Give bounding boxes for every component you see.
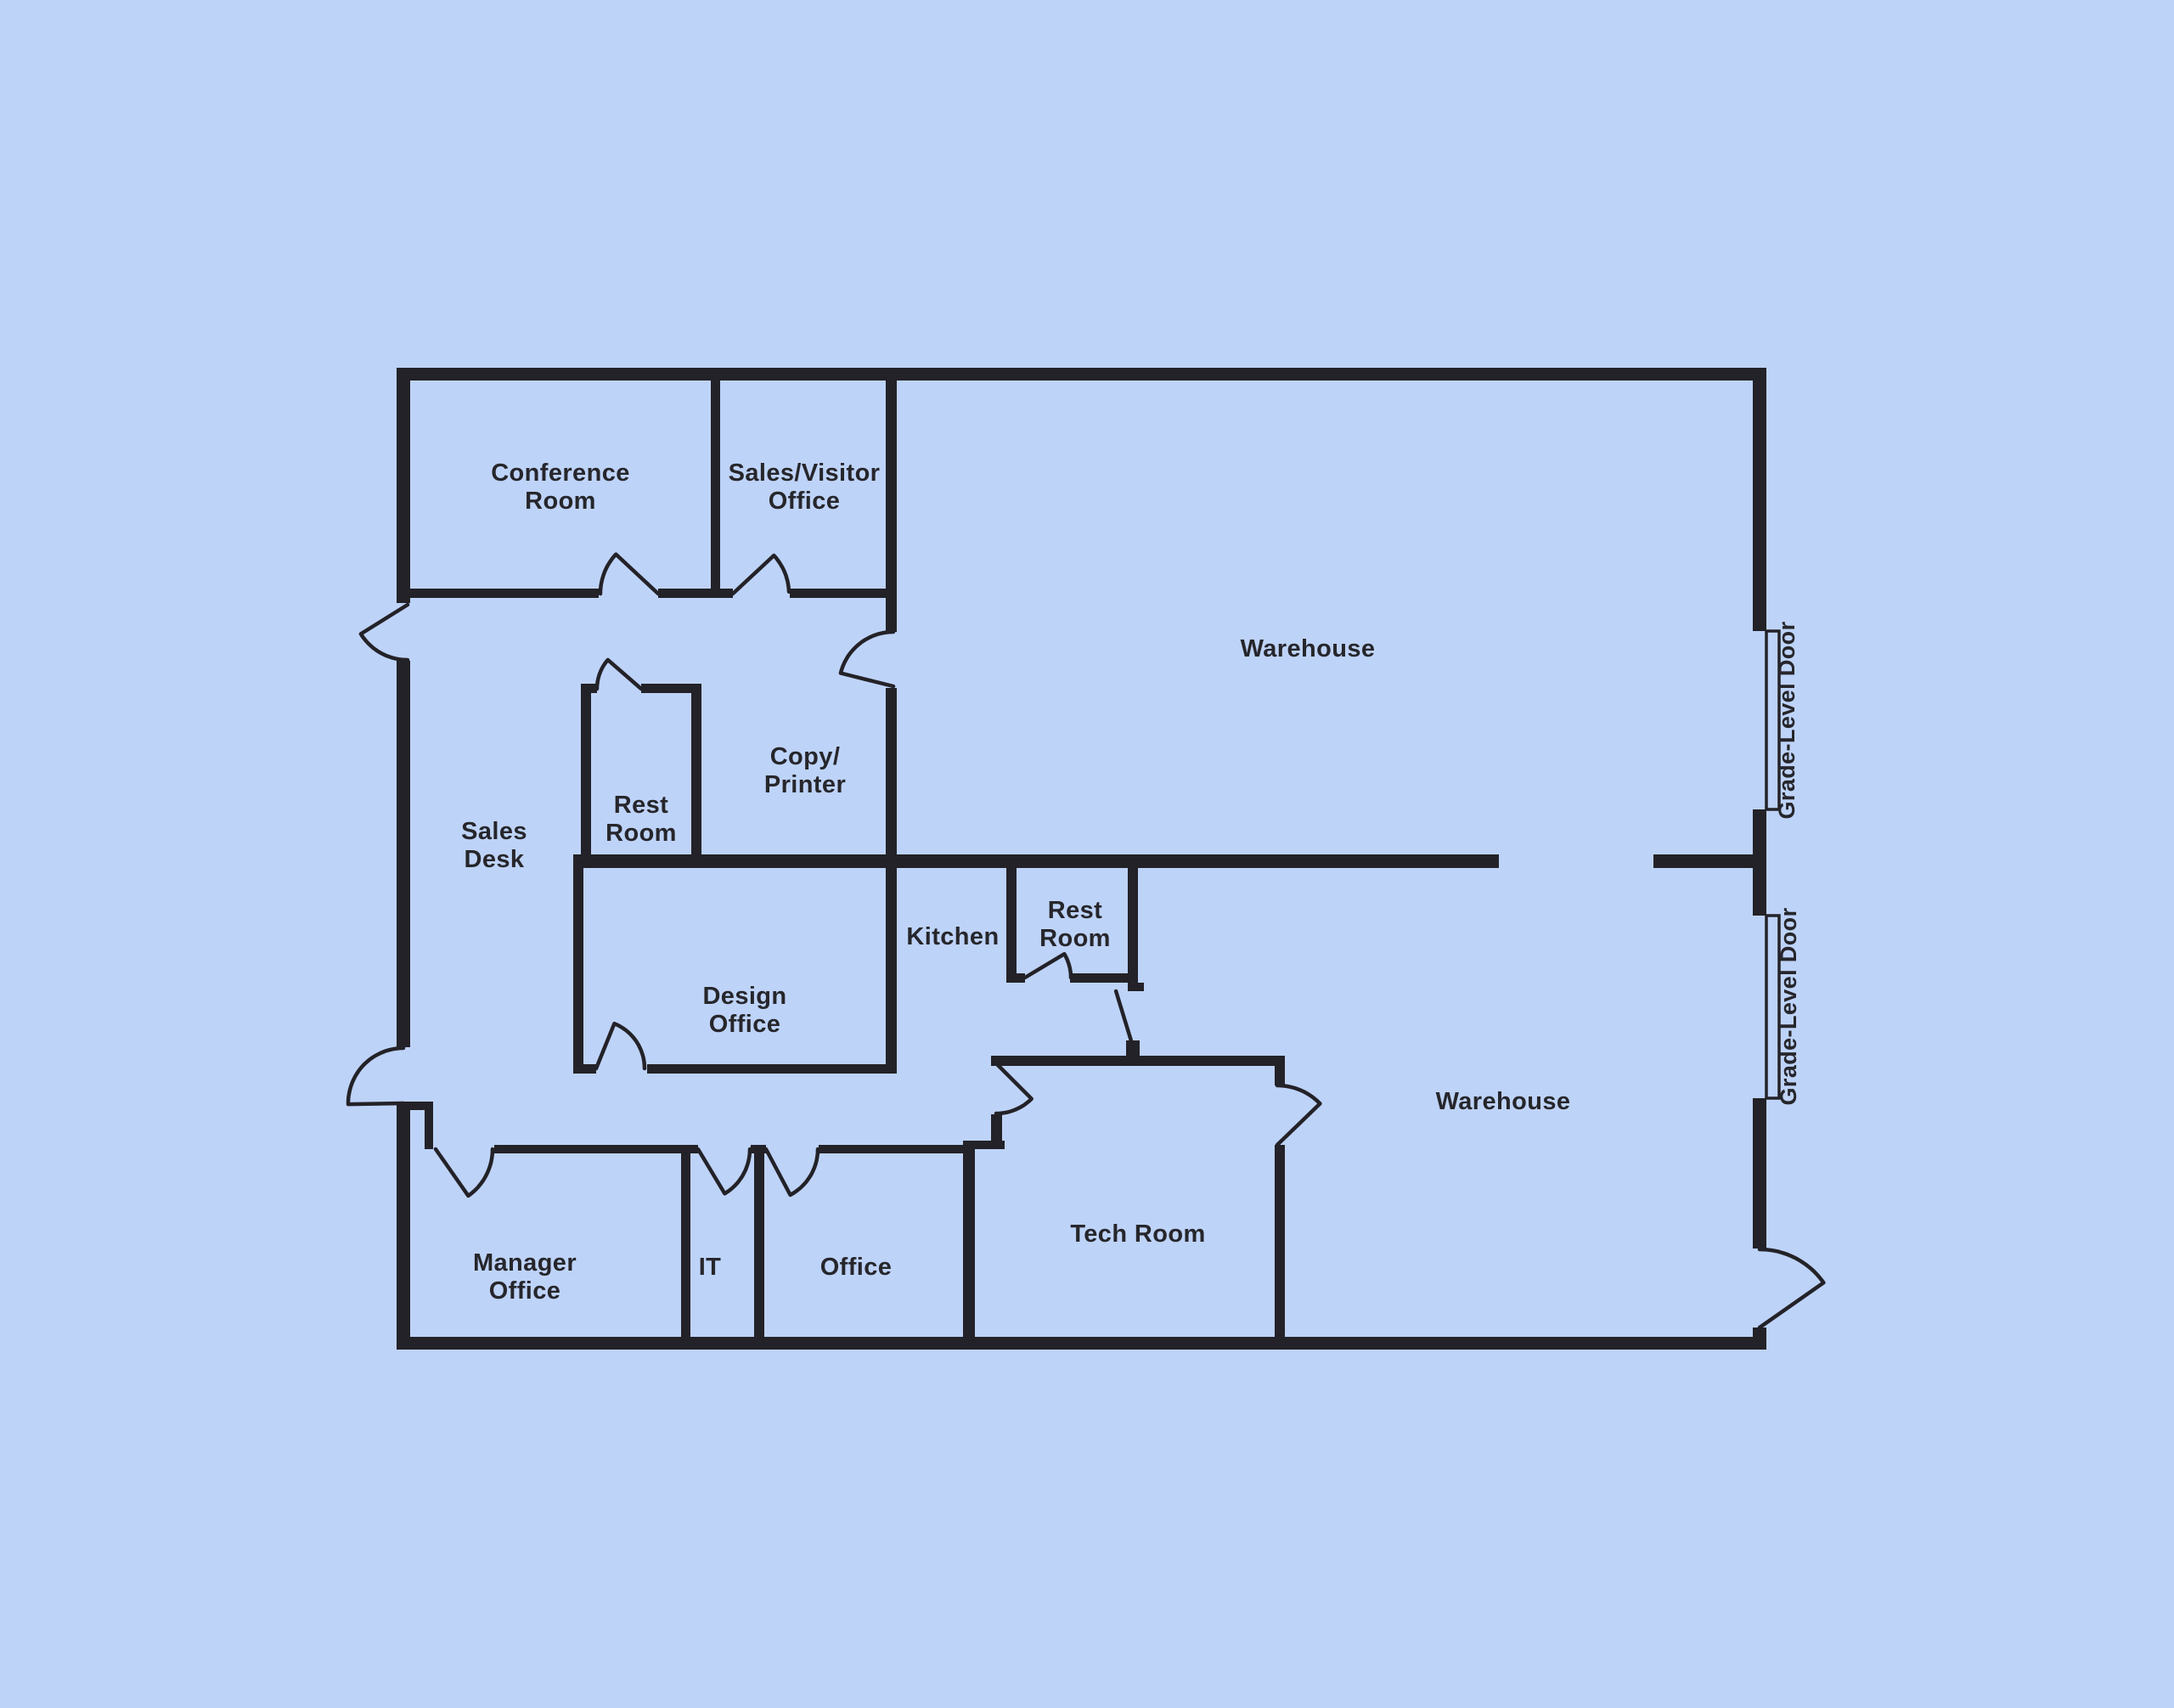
side-label-text: Grade-Level Door bbox=[1774, 621, 1799, 819]
wall bbox=[573, 1064, 596, 1074]
room-label-line: Office bbox=[769, 488, 841, 515]
side-label-grade-level-door-upper: Grade-Level Door bbox=[1774, 621, 1799, 819]
room-label-line: Copy/ bbox=[770, 743, 841, 770]
room-label-design-office: DesignOffice bbox=[702, 983, 786, 1038]
wall bbox=[711, 380, 720, 589]
room-label-line: Kitchen bbox=[906, 923, 999, 950]
room-label-rest-room-lower: RestRoom bbox=[1039, 897, 1111, 952]
room-label-office: Office bbox=[820, 1254, 893, 1281]
wall bbox=[1006, 868, 1017, 983]
wall bbox=[397, 368, 1766, 380]
room-label-line: Manager bbox=[473, 1249, 577, 1277]
room-label-line: Warehouse bbox=[1241, 635, 1376, 662]
wall bbox=[1275, 1145, 1285, 1337]
room-label-line: Sales/Visitor bbox=[729, 459, 881, 487]
room-label-line: Office bbox=[489, 1277, 561, 1305]
room-label-warehouse-lower: Warehouse bbox=[1436, 1088, 1571, 1115]
room-label-line: Sales bbox=[461, 818, 527, 845]
wall bbox=[1753, 368, 1766, 631]
room-label-line: IT bbox=[699, 1254, 722, 1281]
wall bbox=[790, 589, 897, 598]
room-label-line: Tech Room bbox=[1070, 1220, 1205, 1248]
wall bbox=[754, 1153, 764, 1337]
side-label-text: Grade-Level Door bbox=[1776, 907, 1801, 1105]
wall bbox=[397, 1337, 1766, 1350]
wall bbox=[397, 661, 410, 1047]
wall bbox=[1070, 973, 1138, 983]
wall bbox=[963, 1149, 975, 1337]
room-label-line: Printer bbox=[764, 771, 846, 798]
wall bbox=[991, 1056, 1285, 1066]
wall bbox=[1753, 809, 1766, 916]
wall bbox=[573, 868, 583, 1065]
wall bbox=[1128, 983, 1144, 991]
room-label-line: Warehouse bbox=[1436, 1088, 1571, 1115]
wall bbox=[963, 1141, 1005, 1149]
room-label-line: Desk bbox=[465, 846, 525, 873]
wall bbox=[1653, 854, 1753, 868]
wall bbox=[681, 1145, 690, 1337]
room-label-sales-desk: SalesDesk bbox=[461, 818, 527, 873]
room-label-it-room: IT bbox=[699, 1254, 722, 1281]
room-label-line: Office bbox=[709, 1011, 781, 1038]
wall bbox=[819, 1145, 963, 1153]
wall bbox=[886, 868, 897, 1074]
wall bbox=[573, 854, 1499, 868]
wall bbox=[494, 1145, 698, 1153]
wall bbox=[751, 1145, 766, 1153]
room-label-line: Room bbox=[605, 820, 677, 847]
side-label-grade-level-door-lower: Grade-Level Door bbox=[1776, 907, 1801, 1105]
room-label-tech-room: Tech Room bbox=[1070, 1220, 1205, 1248]
wall bbox=[1006, 973, 1025, 983]
wall bbox=[397, 1103, 410, 1350]
wall bbox=[991, 1114, 1002, 1141]
room-label-warehouse-upper: Warehouse bbox=[1241, 635, 1376, 662]
background bbox=[0, 0, 2174, 1708]
room-label-line: Rest bbox=[614, 792, 668, 819]
wall bbox=[581, 684, 591, 854]
wall bbox=[410, 589, 599, 598]
wall bbox=[1753, 1328, 1766, 1350]
room-label-line: Office bbox=[820, 1254, 893, 1281]
room-label-kitchen: Kitchen bbox=[906, 923, 999, 950]
wall bbox=[581, 684, 597, 693]
wall bbox=[886, 380, 897, 632]
wall bbox=[1275, 1056, 1285, 1085]
wall bbox=[691, 684, 701, 854]
wall bbox=[1128, 868, 1138, 991]
wall bbox=[425, 1110, 433, 1149]
room-label-line: Room bbox=[525, 488, 596, 515]
room-label-rest-room-upper: RestRoom bbox=[605, 792, 677, 847]
wall bbox=[397, 368, 410, 603]
wall bbox=[1753, 1098, 1766, 1249]
room-label-line: Design bbox=[702, 983, 786, 1010]
room-label-copy-printer: Copy/Printer bbox=[764, 743, 846, 798]
wall bbox=[658, 589, 733, 598]
room-label-line: Conference bbox=[491, 459, 630, 487]
room-label-line: Room bbox=[1039, 925, 1111, 952]
wall bbox=[647, 1064, 897, 1074]
wall bbox=[886, 688, 897, 854]
floor-plan-page: ConferenceRoomSales/VisitorOfficeWarehou… bbox=[0, 0, 2174, 1708]
room-label-line: Rest bbox=[1048, 897, 1102, 924]
floor-plan: ConferenceRoomSales/VisitorOfficeWarehou… bbox=[0, 0, 2174, 1708]
